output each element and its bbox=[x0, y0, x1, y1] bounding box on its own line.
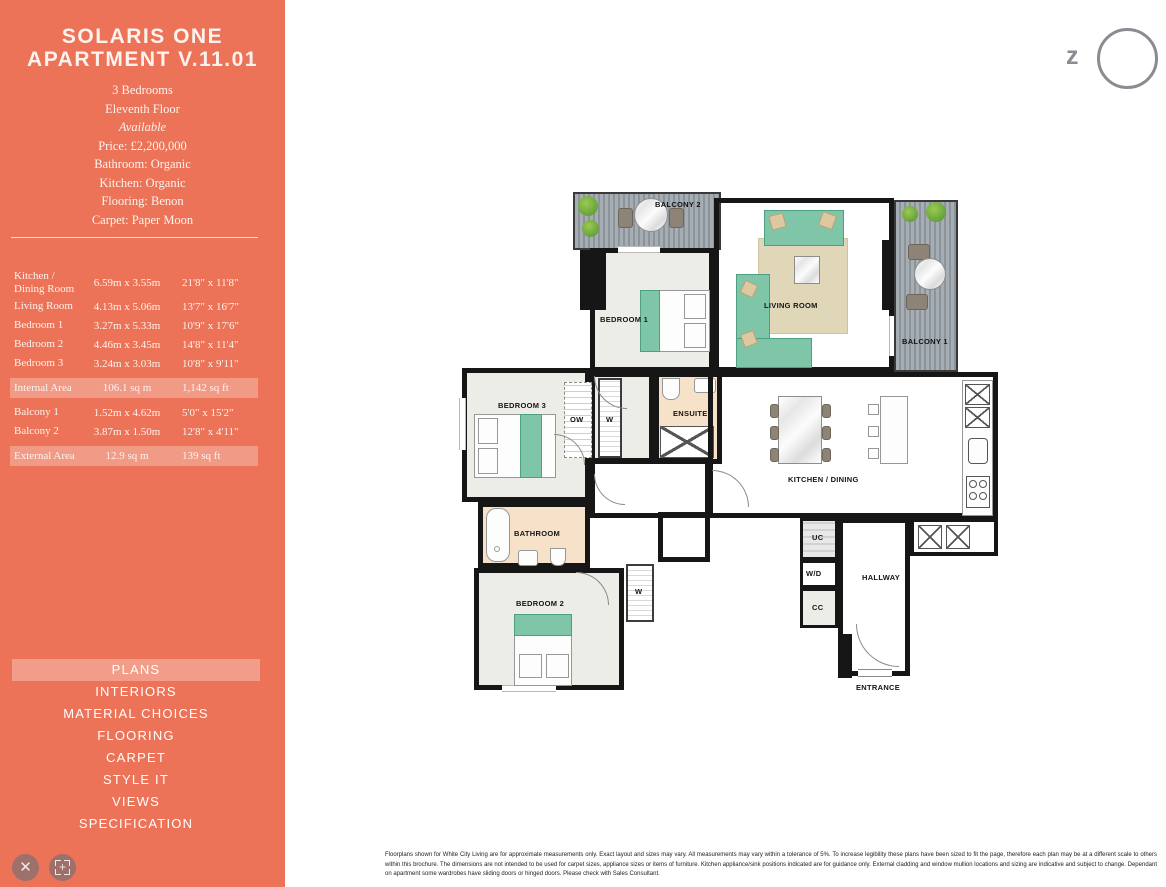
nav-item-material-choices[interactable]: MATERIAL CHOICES bbox=[12, 703, 260, 725]
room-metric: 3.27m x 5.33m bbox=[82, 320, 172, 332]
title-line-2: APARTMENT V.11.01 bbox=[0, 48, 285, 71]
detail-bathroom: Bathroom: Organic bbox=[0, 155, 285, 174]
detail-bedrooms: 3 Bedrooms bbox=[0, 81, 285, 100]
window bbox=[502, 685, 556, 692]
wall bbox=[580, 250, 606, 310]
sink bbox=[968, 438, 988, 464]
wardrobe-label: OW bbox=[570, 416, 584, 424]
detail-availability: Available bbox=[0, 118, 285, 137]
pillow bbox=[546, 654, 569, 678]
bathtub bbox=[486, 508, 510, 562]
room-imperial: 10'9" x 17'6" bbox=[172, 320, 258, 332]
balcony1-chair bbox=[906, 294, 928, 310]
disclaimer-text: Floorplans shown for White City Living a… bbox=[385, 851, 1157, 880]
room-imperial: 139 sq ft bbox=[172, 450, 258, 462]
close-button[interactable]: ✕ bbox=[12, 854, 39, 881]
window bbox=[459, 398, 466, 450]
appliance bbox=[918, 525, 942, 549]
detail-flooring: Flooring: Benon bbox=[0, 192, 285, 211]
nav-item-carpet[interactable]: CARPET bbox=[12, 747, 260, 769]
appliance bbox=[965, 407, 990, 428]
room-imperial: 5'0" x 15'2" bbox=[172, 407, 258, 419]
room-label: KITCHEN / DINING bbox=[788, 476, 859, 484]
detail-price: Price: £2,200,000 bbox=[0, 137, 285, 156]
logo-circle-icon bbox=[1097, 28, 1158, 89]
sidebar: SOLARIS ONE APARTMENT V.11.01 3 Bedrooms… bbox=[0, 0, 285, 887]
nav-item-specification[interactable]: SPECIFICATION bbox=[12, 813, 260, 835]
brand-logo: z bbox=[1066, 42, 1079, 71]
table-row: Living Room 4.13m x 5.06m 13'7" x 16'7" bbox=[10, 297, 258, 316]
balcony2-chair bbox=[669, 208, 684, 228]
table-row: Balcony 1 1.52m x 4.62m 5'0" x 15'2" bbox=[10, 403, 258, 422]
closet-label: CC bbox=[812, 604, 823, 612]
room-name: Balcony 1 bbox=[10, 406, 82, 419]
detail-carpet: Carpet: Paper Moon bbox=[0, 211, 285, 230]
room-label: ENTRANCE bbox=[856, 684, 900, 692]
hob-burner bbox=[969, 480, 977, 488]
dining-chair bbox=[770, 404, 779, 418]
corridor-stub bbox=[658, 512, 710, 562]
pillow bbox=[478, 418, 498, 444]
hob-burner bbox=[979, 492, 987, 500]
nav-item-style-it[interactable]: STYLE IT bbox=[12, 769, 260, 791]
pillow bbox=[684, 323, 706, 348]
appliance bbox=[965, 384, 990, 405]
room-metric: 3.24m x 3.03m bbox=[82, 358, 172, 370]
pillow bbox=[478, 448, 498, 474]
room-imperial: 13'7" x 16'7" bbox=[172, 301, 258, 313]
plant-icon bbox=[926, 202, 946, 222]
plant-icon bbox=[902, 206, 918, 222]
room-name: Balcony 2 bbox=[10, 425, 82, 438]
dining-chair bbox=[822, 404, 831, 418]
wall bbox=[838, 634, 852, 678]
bedroom3-bed-throw bbox=[520, 414, 542, 478]
room-metric: 12.9 sq m bbox=[82, 450, 172, 462]
entrance-opening bbox=[858, 669, 892, 677]
toilet bbox=[662, 378, 680, 400]
external-area-row: External Area 12.9 sq m 139 sq ft bbox=[10, 446, 258, 466]
room-imperial: 21'8" x 11'8" bbox=[172, 277, 258, 289]
floorplan: BALCONY 2 BEDROOM 1 LIVING ROOM BALCONY … bbox=[458, 186, 1003, 711]
fullscreen-button[interactable]: + bbox=[49, 854, 76, 881]
basin bbox=[518, 550, 538, 566]
room-name: Bedroom 1 bbox=[10, 319, 82, 332]
room-label: HALLWAY bbox=[862, 574, 900, 582]
title-line-1: SOLARIS ONE bbox=[0, 25, 285, 48]
room-kitchen-dining bbox=[708, 372, 998, 518]
room-label: ENSUITE bbox=[673, 410, 708, 418]
room-label: BEDROOM 3 bbox=[498, 402, 546, 410]
room-metric: 3.87m x 1.50m bbox=[82, 426, 172, 438]
room-metric: 4.13m x 5.06m bbox=[82, 301, 172, 313]
island-stool bbox=[868, 426, 879, 437]
room-name: Bedroom 3 bbox=[10, 357, 82, 370]
dining-chair bbox=[822, 426, 831, 440]
island-stool bbox=[868, 448, 879, 459]
table-row: Bedroom 3 3.24m x 3.03m 10'8" x 9'11" bbox=[10, 354, 258, 373]
room-label: BEDROOM 2 bbox=[516, 600, 564, 608]
shower bbox=[660, 426, 714, 458]
room-metric: 1.52m x 4.62m bbox=[82, 407, 172, 419]
sidebar-nav: PLANS INTERIORS MATERIAL CHOICES FLOORIN… bbox=[0, 659, 285, 835]
plant-icon bbox=[582, 220, 599, 237]
island-stool bbox=[868, 404, 879, 415]
nav-item-plans[interactable]: PLANS bbox=[12, 659, 260, 681]
table-row: Kitchen / Dining Room 6.59m x 3.55m 21'8… bbox=[10, 268, 258, 297]
balcony2-chair bbox=[618, 208, 633, 228]
room-name: Living Room bbox=[10, 300, 82, 313]
room-label: LIVING ROOM bbox=[764, 302, 818, 310]
pillow bbox=[684, 294, 706, 319]
wardrobe-label: W bbox=[635, 588, 642, 596]
closet-label: UC bbox=[812, 534, 823, 542]
balcony1-table bbox=[914, 258, 946, 290]
room-label: BEDROOM 1 bbox=[600, 316, 648, 324]
logo-letter: z bbox=[1066, 42, 1079, 70]
room-name: Bedroom 2 bbox=[10, 338, 82, 351]
room-label: BALCONY 1 bbox=[902, 338, 948, 346]
detail-floor: Eleventh Floor bbox=[0, 100, 285, 119]
bedroom2-bed-throw bbox=[514, 614, 572, 636]
appliance bbox=[946, 525, 970, 549]
room-name: Kitchen / Dining Room bbox=[10, 270, 82, 296]
table-row: Bedroom 2 4.46m x 3.45m 14'8" x 11'4" bbox=[10, 335, 258, 354]
dining-chair bbox=[822, 448, 831, 462]
room-imperial: 12'8" x 4'11" bbox=[172, 426, 258, 438]
room-imperial: 14'8" x 11'4" bbox=[172, 339, 258, 351]
balcony-door bbox=[618, 246, 660, 253]
room-metric: 4.46m x 3.45m bbox=[82, 339, 172, 351]
dining-chair bbox=[770, 426, 779, 440]
nav-item-flooring[interactable]: FLOORING bbox=[12, 725, 260, 747]
room-imperial: 10'8" x 9'11" bbox=[172, 358, 258, 370]
apartment-details: 3 Bedrooms Eleventh Floor Available Pric… bbox=[0, 81, 285, 229]
nav-item-interiors[interactable]: INTERIORS bbox=[12, 681, 260, 703]
page-title: SOLARIS ONE APARTMENT V.11.01 bbox=[0, 25, 285, 71]
table-row: Bedroom 1 3.27m x 5.33m 10'9" x 17'6" bbox=[10, 316, 258, 335]
room-name: External Area bbox=[10, 450, 82, 463]
table-row: Balcony 2 3.87m x 1.50m 12'8" x 4'11" bbox=[10, 422, 258, 441]
room-name: Internal Area bbox=[10, 382, 82, 395]
dining-table bbox=[778, 396, 822, 464]
room-metric: 106.1 sq m bbox=[82, 382, 172, 394]
coffee-table bbox=[794, 256, 820, 284]
nav-item-views[interactable]: VIEWS bbox=[12, 791, 260, 813]
living-rug bbox=[758, 238, 848, 334]
kitchen-island bbox=[880, 396, 908, 464]
closet-label: W/D bbox=[806, 570, 821, 578]
internal-area-row: Internal Area 106.1 sq m 1,142 sq ft bbox=[10, 378, 258, 398]
detail-kitchen: Kitchen: Organic bbox=[0, 174, 285, 193]
pillow bbox=[519, 654, 542, 678]
toilet bbox=[550, 548, 566, 566]
bath-drain bbox=[494, 546, 500, 552]
dining-chair bbox=[770, 448, 779, 462]
room-label: BALCONY 2 bbox=[655, 201, 701, 209]
room-label: BATHROOM bbox=[514, 530, 560, 538]
room-imperial: 1,142 sq ft bbox=[172, 382, 258, 394]
hob-burner bbox=[969, 492, 977, 500]
wardrobe-label: W bbox=[606, 416, 613, 424]
hob-burner bbox=[979, 480, 987, 488]
plant-icon bbox=[578, 196, 598, 216]
divider bbox=[11, 237, 258, 238]
dimensions-table: Kitchen / Dining Room 6.59m x 3.55m 21'8… bbox=[10, 268, 258, 471]
close-icon: ✕ bbox=[19, 859, 32, 876]
room-metric: 6.59m x 3.55m bbox=[82, 277, 172, 289]
